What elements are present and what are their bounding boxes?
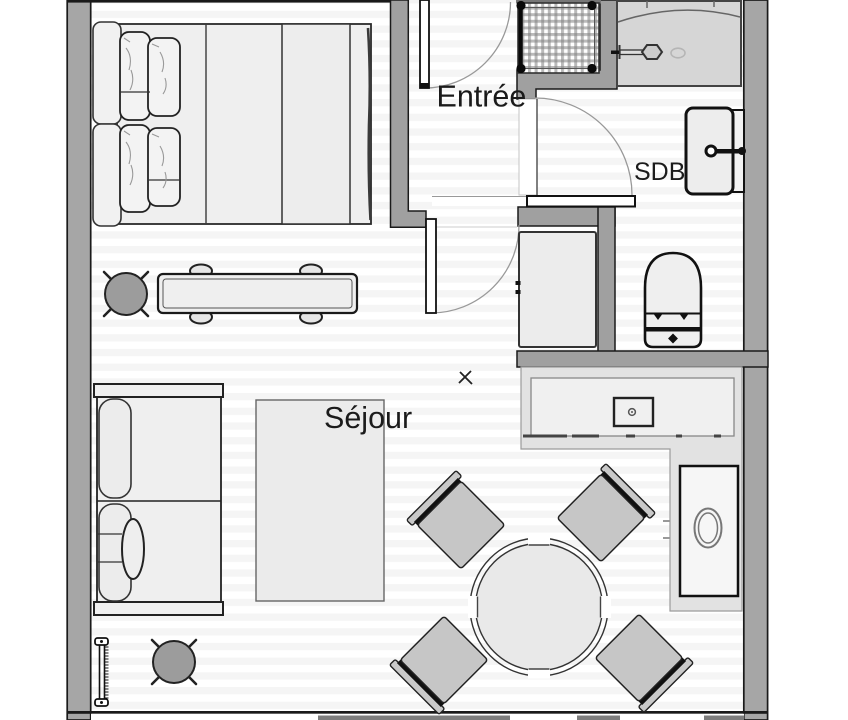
- svg-text:SDB: SDB: [634, 158, 685, 186]
- svg-text:Entrée: Entrée: [437, 80, 527, 114]
- svg-text:Séjour: Séjour: [324, 401, 412, 435]
